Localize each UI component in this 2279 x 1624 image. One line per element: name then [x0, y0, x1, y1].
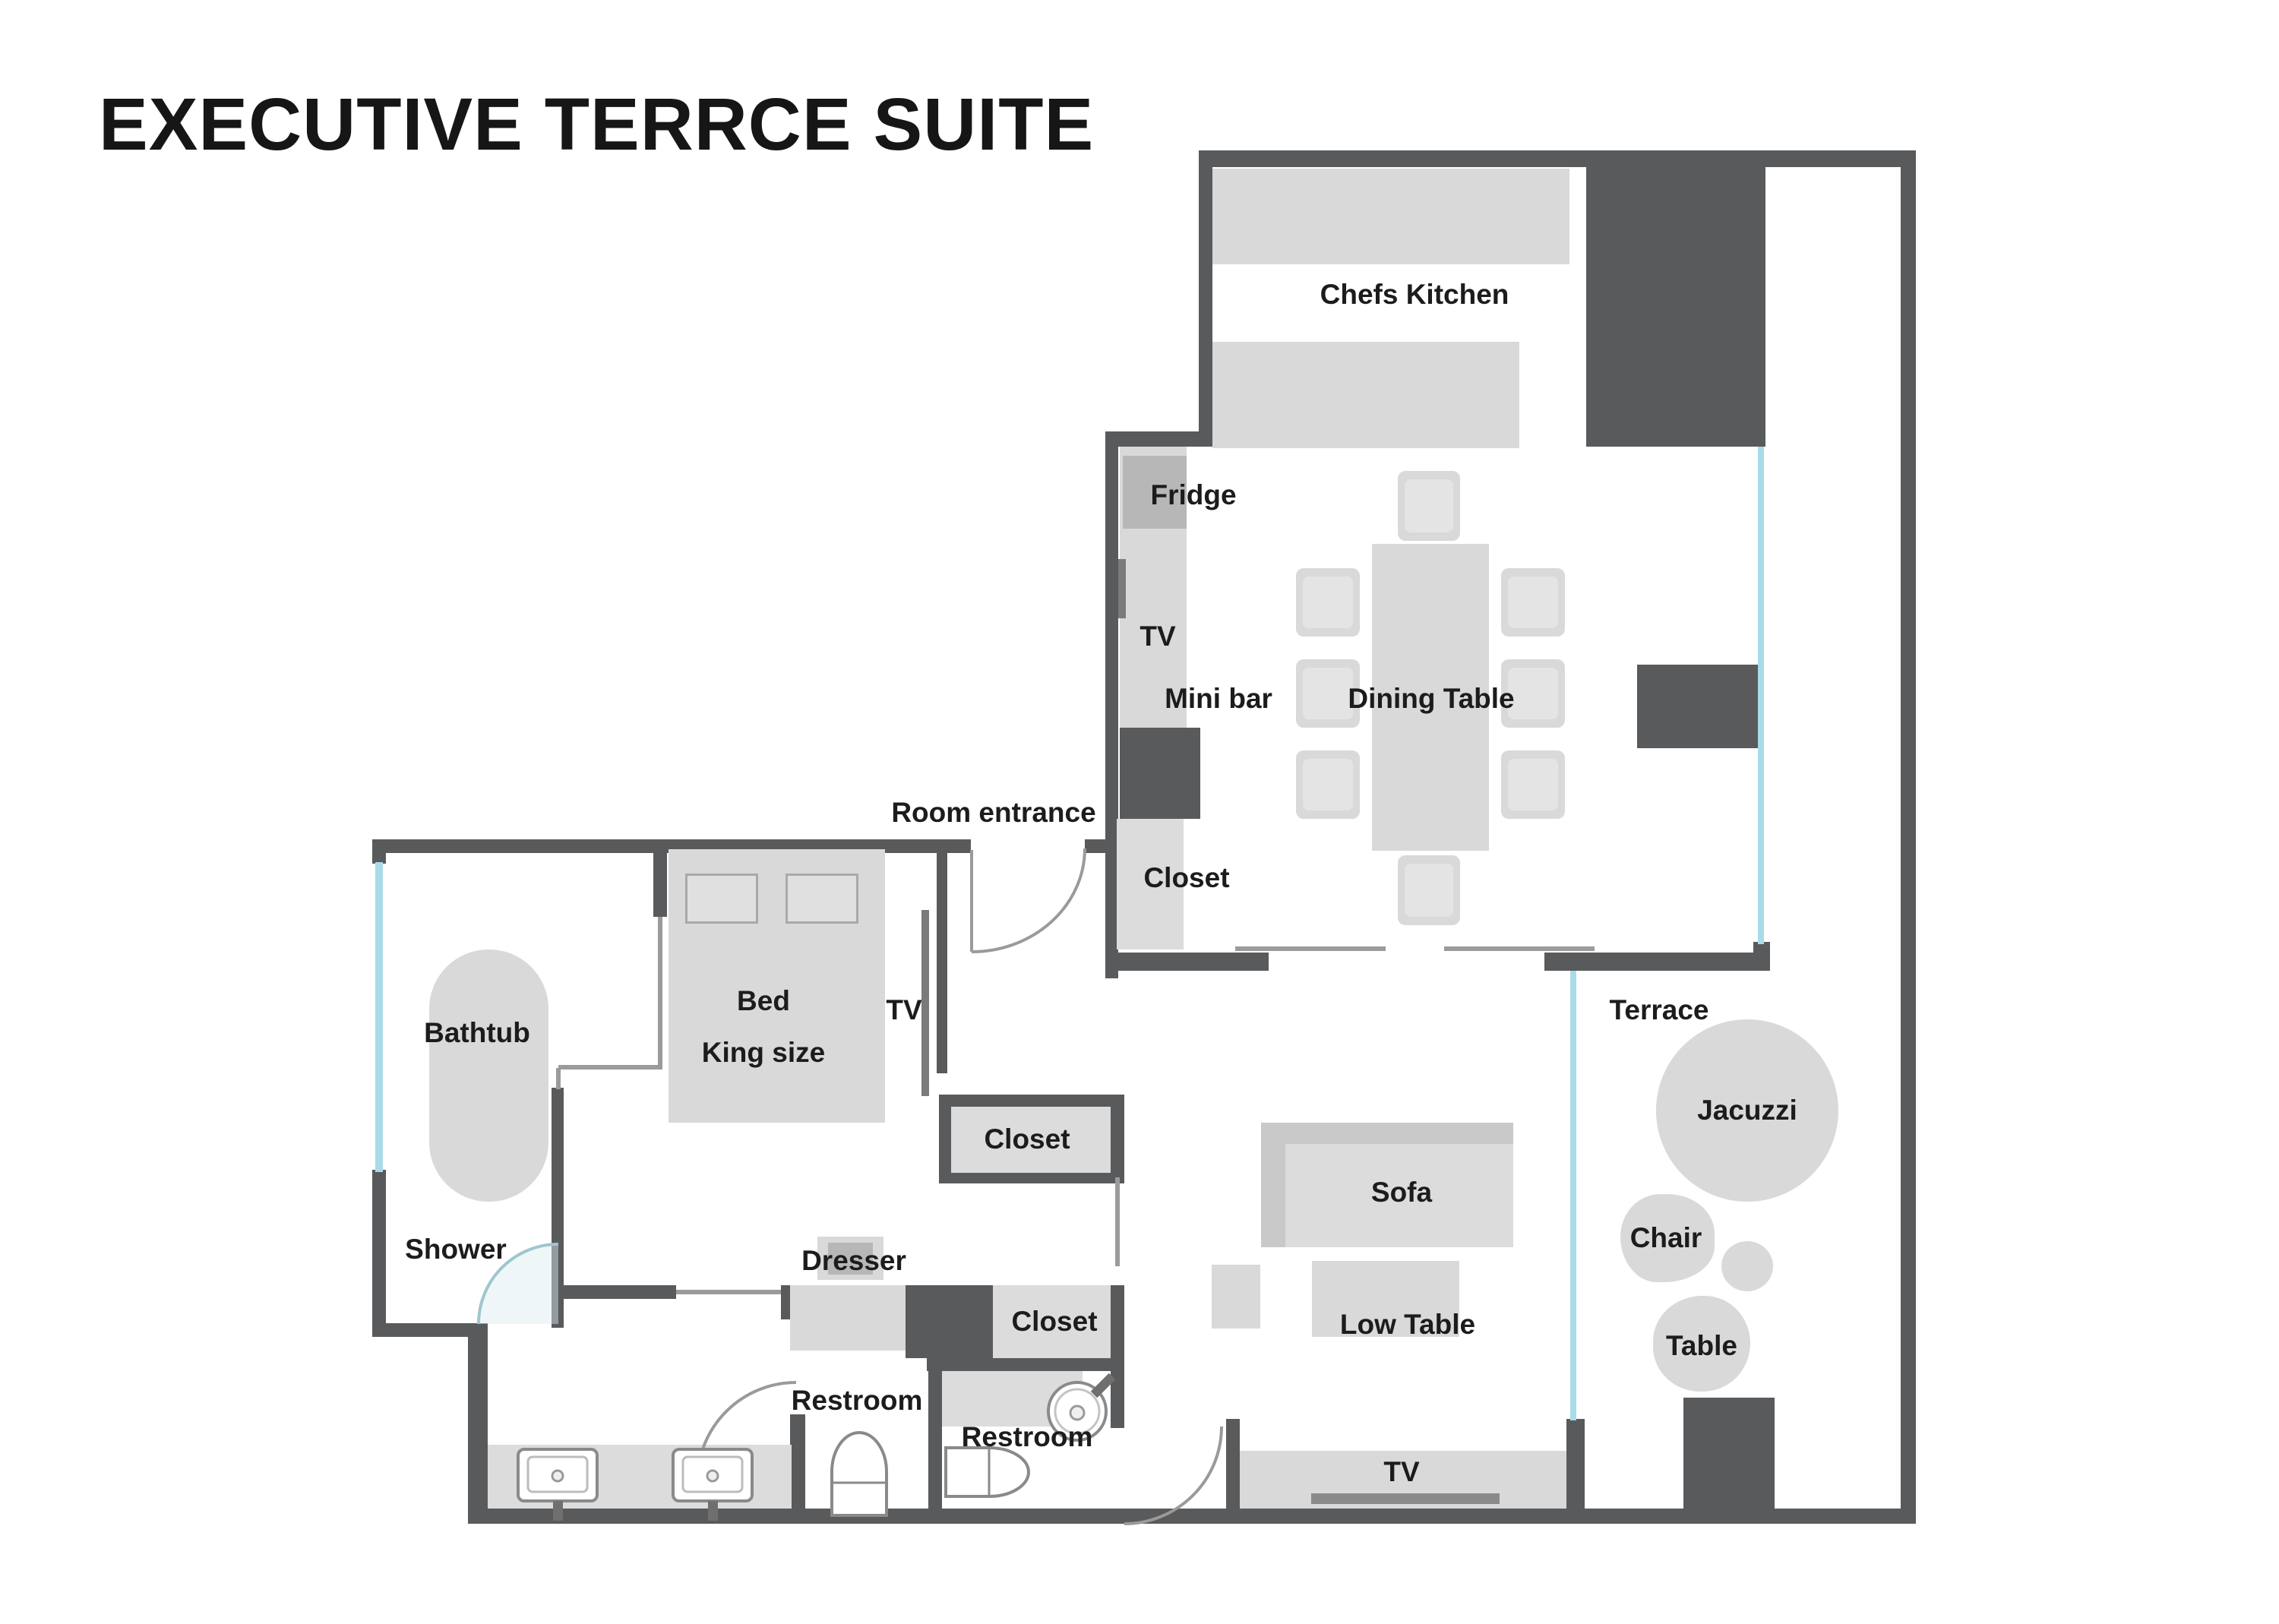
label-restroom-left: Restroom	[792, 1385, 923, 1417]
label-bathtub: Bathtub	[424, 1017, 530, 1049]
label-bed: Bed	[737, 985, 790, 1017]
label-jacuzzi: Jacuzzi	[1697, 1095, 1797, 1126]
label-closet-bedroom: Closet	[984, 1123, 1070, 1155]
label-fridge: Fridge	[1150, 479, 1236, 511]
label-low-table: Low Table	[1340, 1309, 1475, 1341]
label-tv-dining: TV	[1139, 621, 1175, 652]
floor-plan: EXECUTIVE TERRCE SUITE	[0, 0, 2279, 1624]
label-restroom-right: Restroom	[962, 1421, 1093, 1453]
label-tv-living: TV	[1383, 1456, 1419, 1488]
door-arc-restroom-right	[1124, 1427, 1222, 1524]
fixture-linework	[0, 0, 2279, 1624]
toilet-right-icon	[946, 1448, 1029, 1496]
label-closet-dining: Closet	[1143, 862, 1229, 894]
label-chefs-kitchen: Chefs Kitchen	[1320, 279, 1509, 311]
label-dining-table: Dining Table	[1348, 683, 1514, 715]
label-tv-bedroom: TV	[886, 994, 921, 1026]
label-terrace: Terrace	[1610, 994, 1709, 1026]
toilet-left-icon	[832, 1433, 887, 1515]
sink-right-icon	[673, 1449, 752, 1521]
label-king-size: King size	[702, 1037, 825, 1069]
label-shower: Shower	[405, 1234, 507, 1265]
label-mini-bar: Mini bar	[1165, 683, 1272, 715]
door-arc-room-entrance	[972, 848, 1085, 952]
label-closet-hallway: Closet	[1011, 1306, 1097, 1338]
label-dresser: Dresser	[801, 1245, 906, 1277]
label-room-entrance: Room entrance	[891, 797, 1095, 829]
label-table: Table	[1666, 1330, 1737, 1362]
label-chair: Chair	[1630, 1222, 1702, 1254]
label-sofa: Sofa	[1371, 1177, 1432, 1209]
sink-left-icon	[518, 1449, 597, 1521]
